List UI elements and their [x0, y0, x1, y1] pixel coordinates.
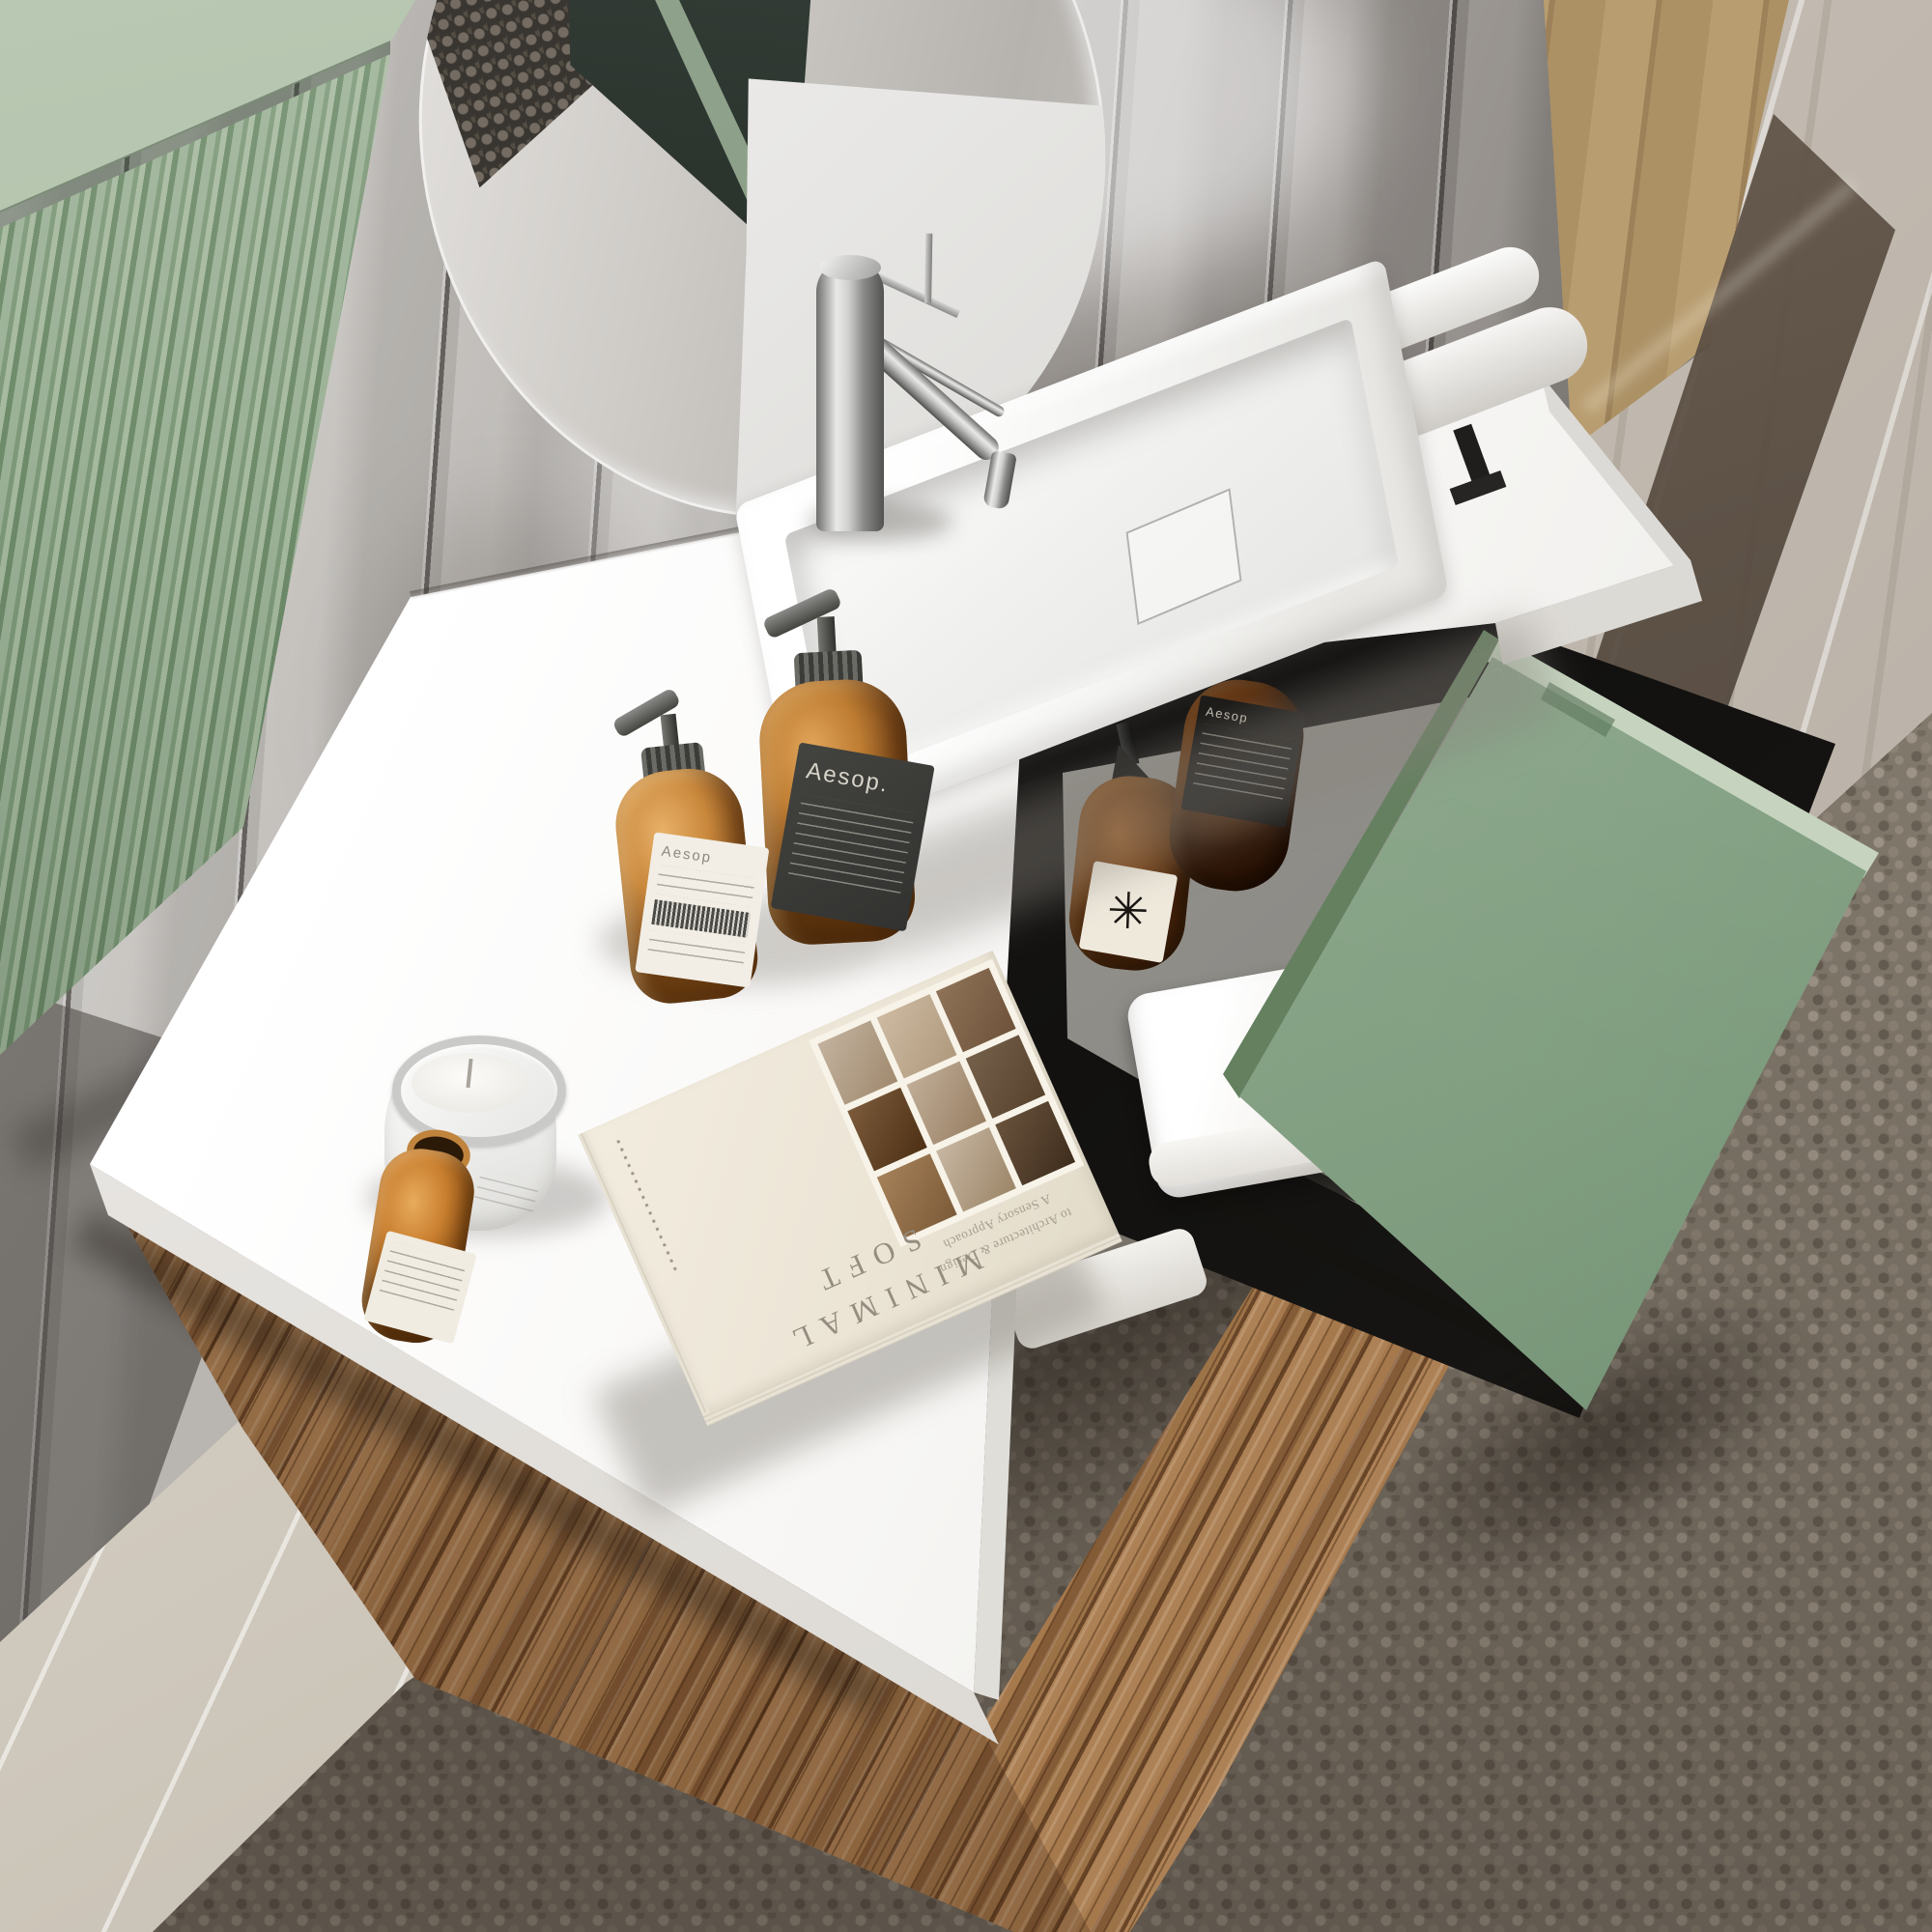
faucet-cap [819, 255, 881, 280]
faucet-body [816, 259, 884, 531]
soap-bottle-large: Aesop. [746, 587, 933, 953]
bottle-label: Aesop. [771, 742, 935, 931]
bathroom-scene: ✳ Aesop [0, 0, 1932, 1932]
botanical-mark-icon: ✳ [1106, 882, 1151, 941]
bottle-label: Aesop [635, 832, 769, 987]
